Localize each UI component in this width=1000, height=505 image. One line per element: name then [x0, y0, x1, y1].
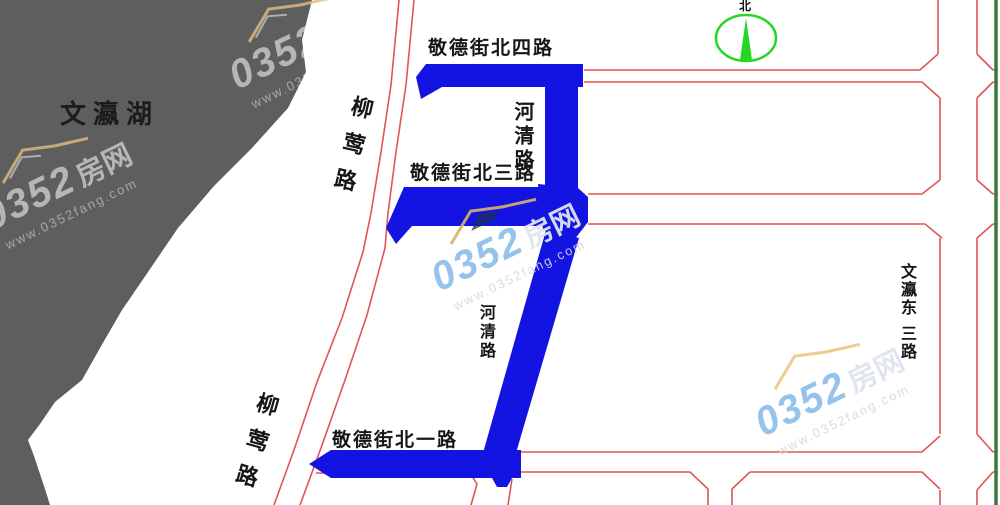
road-label-heqing-lower: 河清路: [477, 304, 493, 361]
heqing-upper-blue: [545, 85, 578, 190]
road-label-wenying-east-part1: 文瀛东: [898, 263, 914, 317]
compass-north-label: 北: [739, 0, 751, 12]
map-canvas: [0, 0, 1000, 505]
road1-blue-bar: [309, 450, 521, 478]
road-label-jingde-north-1: 敬德街北一路: [332, 431, 458, 450]
lake-label: 文瀛湖: [60, 101, 159, 127]
road-label-heqing-upper: 河清路: [512, 101, 532, 173]
road-label-jingde-north-4: 敬德街北四路: [428, 39, 554, 58]
road-label-wenying-east-part2: 三路: [898, 325, 914, 361]
planning-map: 北 文瀛湖 敬德街北四路 敬德街北三路 敬德街北一路 河清路 河清路 文瀛东 三…: [0, 0, 1000, 505]
